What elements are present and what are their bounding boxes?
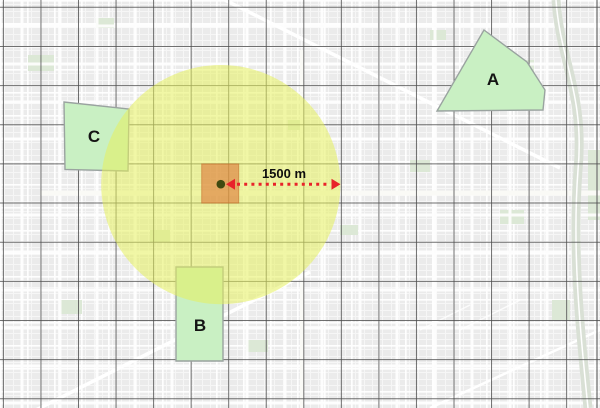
zone-label-a: A (487, 70, 499, 89)
map-svg: ABC1500 m (0, 0, 600, 408)
distance-label: 1500 m (262, 166, 306, 181)
zone-label-b: B (194, 316, 206, 335)
zone-label-c: C (88, 127, 100, 146)
map-canvas[interactable]: ABC1500 m (0, 0, 600, 408)
center-point[interactable] (217, 180, 226, 189)
